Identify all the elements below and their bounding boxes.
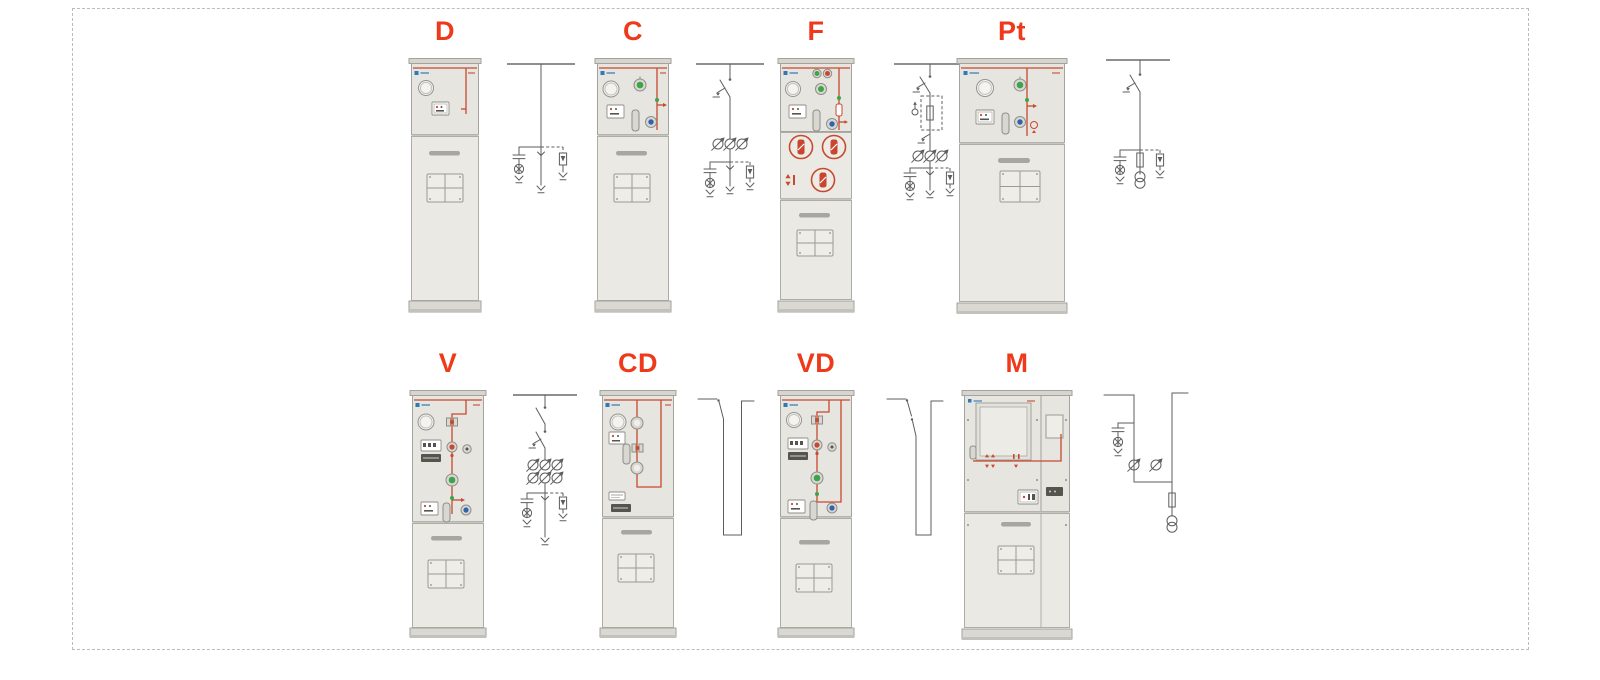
unit-label-pt: Pt bbox=[956, 16, 1068, 46]
earth-icon bbox=[537, 186, 545, 193]
unit-f: F bbox=[775, 16, 980, 318]
ct-icon bbox=[924, 149, 937, 162]
vent-slot bbox=[616, 151, 647, 156]
pressure-gauge-porthole-icon bbox=[603, 81, 619, 97]
unit-c: C bbox=[592, 16, 782, 318]
ct-icon bbox=[936, 149, 949, 162]
surge-arrester-icon bbox=[559, 497, 566, 509]
earthing-switch-icon bbox=[913, 83, 925, 92]
metering-window bbox=[976, 403, 1031, 460]
pressure-gauge-porthole-icon bbox=[419, 81, 434, 96]
inspection-window bbox=[428, 560, 464, 588]
unit-label-vd: VD bbox=[777, 348, 855, 378]
earthing-switch-icon bbox=[713, 88, 725, 97]
cabinet-illustration-f bbox=[777, 58, 855, 314]
ct-icon bbox=[912, 149, 925, 162]
ct-icon bbox=[736, 137, 749, 150]
cabinet-illustration-v bbox=[409, 390, 487, 640]
unit-vd: VD bbox=[775, 348, 955, 648]
inspection-window bbox=[797, 230, 833, 256]
meter-display bbox=[421, 440, 441, 462]
indicator-panel bbox=[788, 500, 805, 513]
circuit-breaker-icon bbox=[536, 432, 545, 448]
vent-slot bbox=[431, 536, 462, 541]
single-line-diagram-v bbox=[505, 385, 585, 563]
indicator-panel bbox=[976, 110, 994, 124]
capacitor-icon bbox=[521, 499, 533, 503]
cabinet-illustration-pt bbox=[956, 58, 1068, 316]
surge-arrester-icon bbox=[559, 153, 566, 165]
earth-icon bbox=[746, 183, 754, 190]
single-line-diagram-m bbox=[1098, 385, 1190, 565]
indicator-lamp-icon bbox=[1113, 437, 1122, 446]
capacitor-icon bbox=[1114, 157, 1126, 161]
cabinet-illustration-d bbox=[408, 58, 482, 314]
ct-icon bbox=[551, 458, 564, 471]
indicator-lamp-icon bbox=[522, 508, 531, 517]
indicator-lamp-icon bbox=[705, 178, 714, 187]
unit-pt: Pt bbox=[954, 16, 1184, 322]
inspection-window bbox=[998, 546, 1034, 574]
disconnector-icon bbox=[536, 408, 545, 424]
unit-d: D bbox=[405, 16, 595, 318]
vent-slot bbox=[799, 540, 830, 545]
surge-arrester-icon bbox=[1156, 154, 1163, 166]
side-display bbox=[1046, 487, 1063, 496]
switch-actuator-icon bbox=[811, 472, 823, 484]
ct-icon bbox=[527, 471, 540, 484]
striker-icon bbox=[912, 109, 918, 115]
indicator-panel bbox=[1018, 490, 1038, 504]
fuse-icon bbox=[927, 103, 933, 123]
switchgear-lineup-figure: D bbox=[0, 0, 1600, 680]
cabinet-illustration-m bbox=[961, 390, 1073, 642]
indicator-panel bbox=[432, 102, 449, 115]
earthing-actuator-icon bbox=[646, 117, 657, 128]
unit-label-c: C bbox=[594, 16, 672, 46]
capacitor-icon bbox=[1112, 428, 1124, 432]
switch-actuator-icon bbox=[816, 84, 827, 95]
ct-icon bbox=[724, 137, 737, 150]
unit-label-d: D bbox=[408, 16, 482, 46]
cabinet-illustration-c bbox=[594, 58, 672, 314]
single-line-diagram-cd bbox=[692, 385, 760, 563]
fuse-icon bbox=[1137, 150, 1143, 170]
inspection-window bbox=[1000, 171, 1040, 202]
operating-handle-slot bbox=[810, 501, 817, 520]
unit-label-m: M bbox=[961, 348, 1073, 378]
inspection-window bbox=[427, 174, 463, 202]
pressure-gauge-porthole-icon bbox=[786, 82, 801, 97]
unit-v: V bbox=[407, 348, 592, 648]
ct-icon bbox=[527, 458, 540, 471]
earth-icon bbox=[1156, 171, 1164, 178]
earth-icon bbox=[946, 189, 954, 196]
earth-icon bbox=[926, 191, 934, 198]
surge-arrester-icon bbox=[946, 172, 953, 184]
operating-handle-slot bbox=[813, 110, 820, 131]
indicator-panel bbox=[789, 105, 806, 118]
capacitor-icon bbox=[513, 155, 525, 159]
ct-icon bbox=[712, 137, 725, 150]
indicator-panel bbox=[421, 502, 438, 515]
earthing-actuator-icon bbox=[827, 119, 838, 130]
earth-icon bbox=[1116, 177, 1124, 184]
pressure-gauge-porthole-icon bbox=[787, 413, 802, 428]
earth-icon bbox=[515, 176, 523, 183]
unit-m: M bbox=[959, 348, 1194, 648]
switch-actuator-icon bbox=[446, 474, 458, 486]
earthing-actuator-icon bbox=[461, 505, 471, 515]
unit-label-cd: CD bbox=[599, 348, 677, 378]
meter-display bbox=[788, 438, 808, 460]
single-line-diagram-d bbox=[495, 52, 585, 198]
vent-slot bbox=[621, 530, 652, 535]
fuse-cover-icon bbox=[790, 136, 813, 159]
inspection-window bbox=[618, 554, 654, 582]
operating-handle-slot bbox=[623, 444, 630, 464]
single-line-diagram-c bbox=[684, 52, 774, 198]
pressure-gauge-porthole-icon bbox=[610, 414, 626, 430]
connector-icon bbox=[1150, 458, 1163, 471]
operating-handle-slot bbox=[1002, 113, 1009, 134]
disconnector-icon bbox=[719, 402, 724, 420]
earth-icon bbox=[726, 187, 734, 194]
switch-actuator-icon bbox=[631, 417, 643, 429]
earthing-switch-icon bbox=[529, 439, 541, 448]
inspection-window bbox=[614, 174, 650, 202]
earth-icon bbox=[559, 514, 567, 521]
indicator-panel bbox=[607, 105, 624, 118]
selector-knob-icon bbox=[463, 445, 471, 453]
vent-slot bbox=[1001, 522, 1031, 527]
earthing-switch-icon bbox=[918, 134, 930, 143]
earthing-switch-icon bbox=[1123, 83, 1135, 92]
fuse-cover-icon bbox=[823, 136, 846, 159]
fuse-cover-icon bbox=[812, 169, 835, 192]
earth-icon bbox=[1114, 449, 1122, 456]
indicator-panel bbox=[609, 432, 625, 444]
operating-handle-slot bbox=[443, 503, 450, 522]
inspection-window bbox=[796, 564, 832, 592]
disconnector-icon bbox=[908, 402, 912, 416]
operating-handle-slot bbox=[632, 110, 639, 131]
earth-icon bbox=[906, 193, 914, 200]
vent-slot bbox=[998, 158, 1030, 163]
cabinet-illustration-cd bbox=[599, 390, 677, 640]
unit-label-v: V bbox=[409, 348, 487, 378]
earthing-actuator-icon bbox=[1015, 117, 1026, 128]
circuit-breaker-icon bbox=[913, 421, 917, 436]
switch-actuator-icon bbox=[631, 462, 643, 474]
fuse-icon bbox=[1169, 490, 1175, 510]
earth-icon bbox=[706, 190, 714, 197]
capacitor-icon bbox=[704, 169, 716, 173]
capacitor-icon bbox=[904, 173, 916, 177]
vent-slot bbox=[429, 151, 460, 156]
indicator-lamp-icon bbox=[514, 164, 523, 173]
selector-knob-icon bbox=[828, 443, 836, 451]
ct-icon bbox=[551, 471, 564, 484]
single-line-diagram-vd bbox=[881, 385, 949, 563]
single-line-diagram-pt bbox=[1098, 50, 1178, 210]
indicator-lamp-icon bbox=[1115, 165, 1124, 174]
earth-icon bbox=[523, 520, 531, 527]
surge-arrester-icon bbox=[746, 166, 753, 178]
earth-icon bbox=[559, 173, 567, 180]
voltage-transformer-icon bbox=[1167, 516, 1177, 532]
operating-handle-slot bbox=[970, 446, 976, 459]
vent-slot bbox=[799, 213, 830, 218]
pressure-gauge-porthole-icon bbox=[418, 414, 434, 430]
unit-label-f: F bbox=[777, 16, 855, 46]
ct-icon bbox=[539, 471, 552, 484]
cabinet-illustration-vd bbox=[777, 390, 855, 640]
pressure-gauge-porthole-icon bbox=[977, 80, 994, 97]
ct-icon bbox=[539, 458, 552, 471]
earth-icon bbox=[541, 538, 549, 545]
indicator-lamp-icon bbox=[905, 181, 914, 190]
unit-cd: CD bbox=[597, 348, 767, 648]
earthing-actuator-icon bbox=[827, 503, 837, 513]
